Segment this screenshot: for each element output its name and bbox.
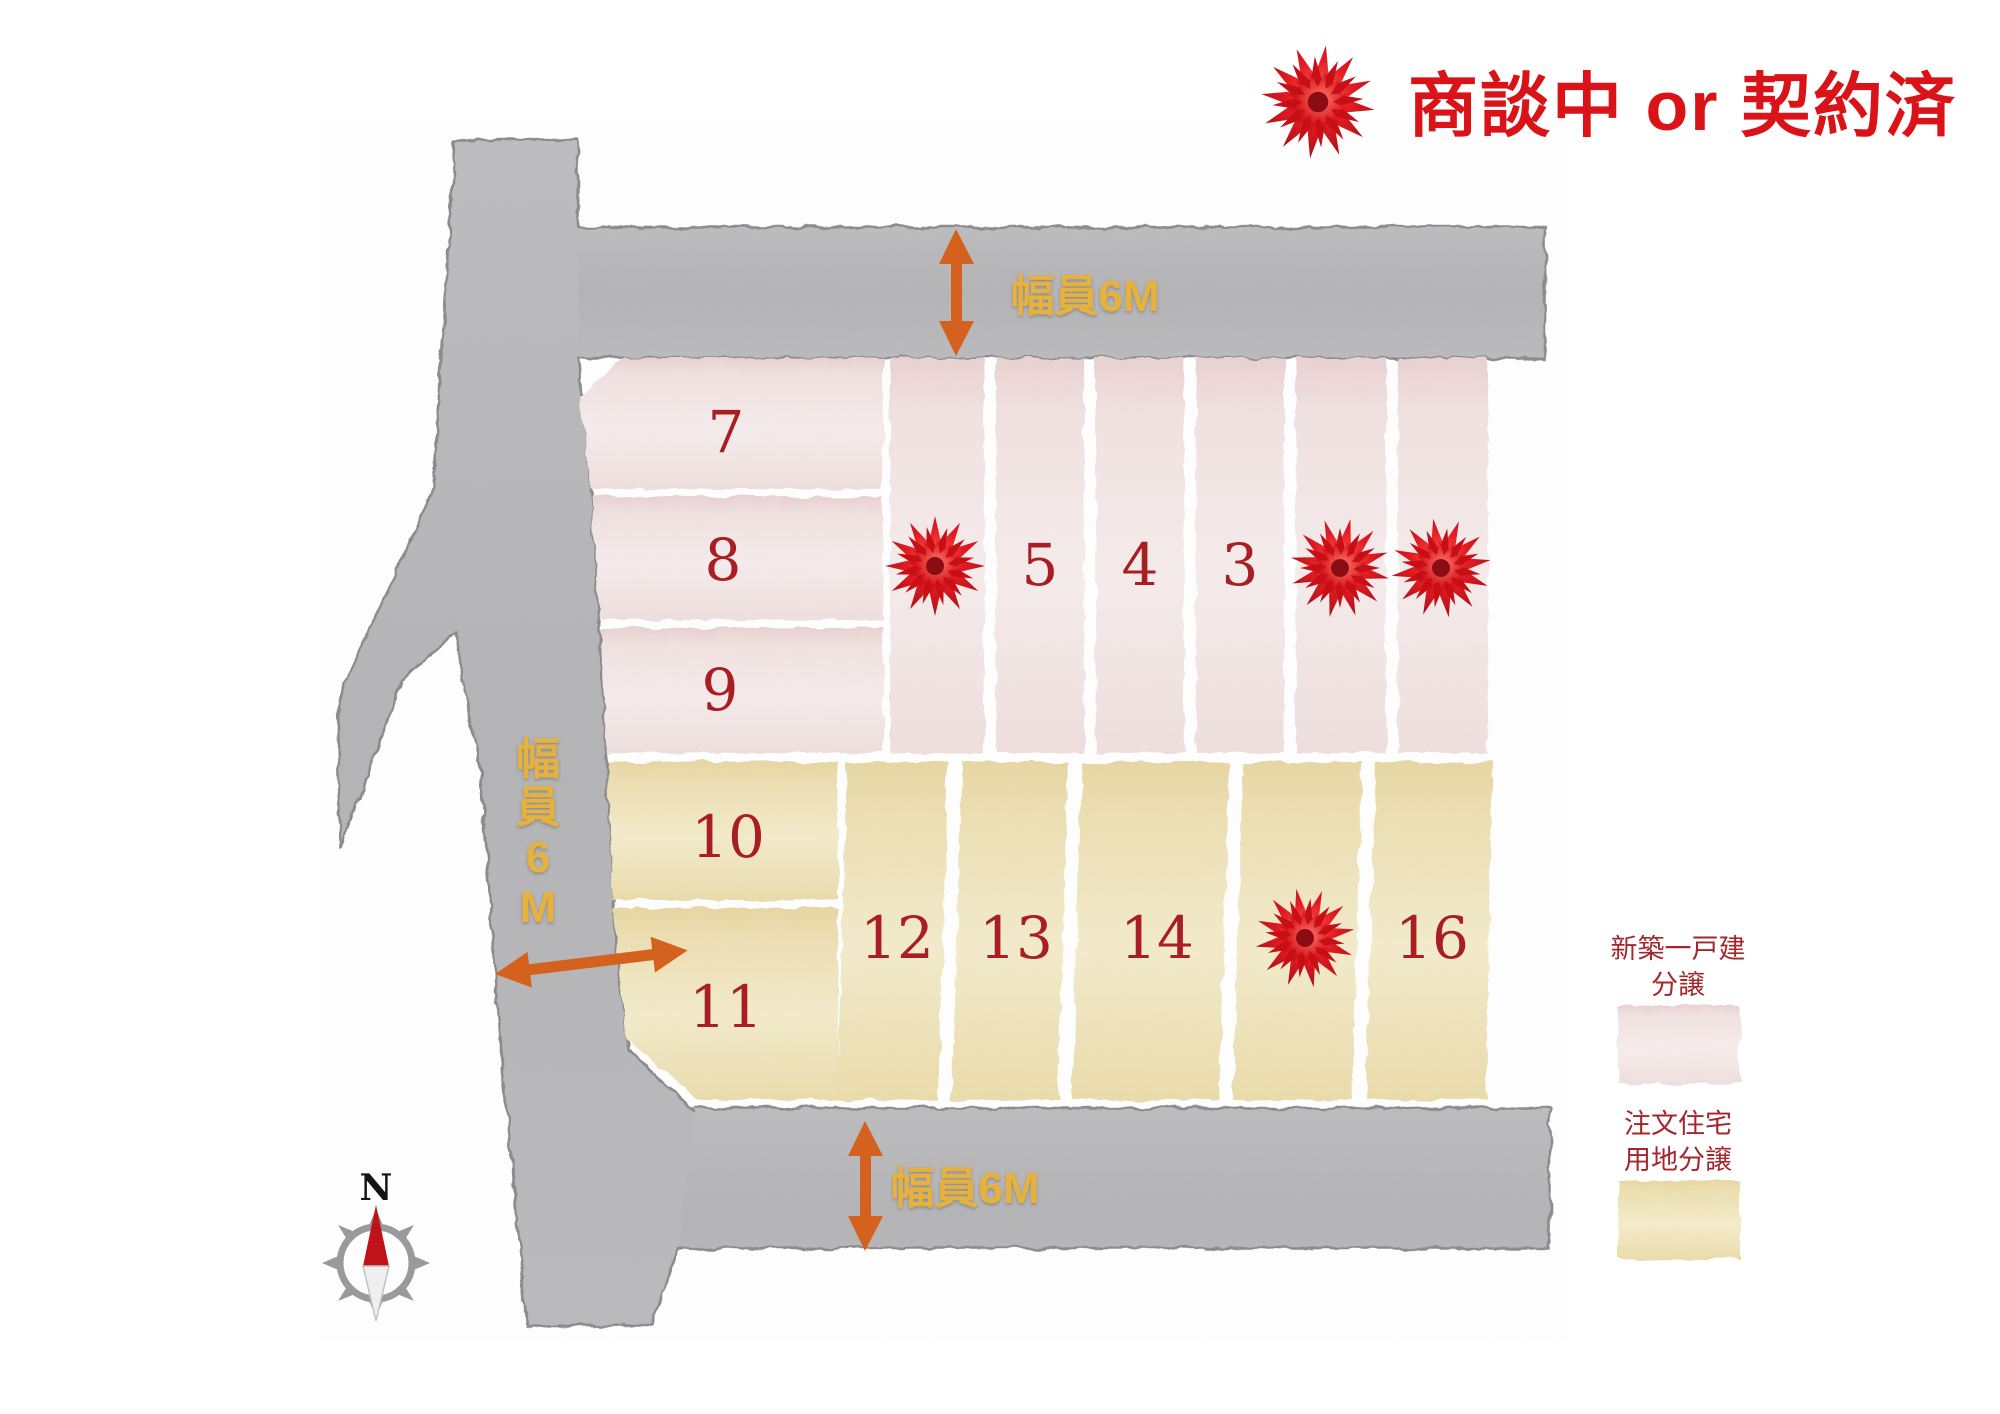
lot-8-number: 8 [705, 526, 742, 594]
lot-11-number: 11 [689, 973, 763, 1041]
width-label-top: 幅員6M [1010, 272, 1159, 321]
legend: 新築一戸建 分譲 注文住宅 用地分譲 [1611, 934, 1746, 1259]
lot-3-number: 3 [1222, 531, 1259, 599]
legend-new-build-line2: 分譲 [1651, 970, 1705, 1001]
lot-14-number: 14 [1120, 904, 1194, 972]
lot-12-number: 12 [860, 904, 934, 972]
legend-swatch-yellow [1618, 1181, 1740, 1259]
lot-4-number: 4 [1122, 531, 1159, 599]
width-label-left-char: 員 [516, 783, 560, 832]
legend-custom-home-line1: 注文住宅 [1624, 1109, 1732, 1140]
compass-north-label: N [360, 1167, 393, 1209]
legend-swatch-pink [1618, 1006, 1740, 1084]
lot-7-number: 7 [708, 398, 745, 466]
lot-9-number: 9 [702, 656, 739, 724]
legend-custom-home-line2: 用地分譲 [1624, 1145, 1732, 1176]
paper-grain-texture [320, 120, 1570, 1340]
lot-16-number: 16 [1395, 904, 1469, 972]
lot-5-number: 5 [1022, 531, 1059, 599]
status-legend-label: 商談中 or 契約済 [1408, 67, 1957, 145]
width-label-bottom: 幅員6M [890, 1164, 1039, 1213]
width-label-left-char: 幅 [516, 735, 560, 784]
legend-item-custom-home: 注文住宅 用地分譲 [1618, 1109, 1740, 1259]
legend-new-build-line1: 新築一戸建 [1611, 934, 1746, 965]
legend-item-new-build: 新築一戸建 分譲 [1611, 934, 1746, 1084]
width-label-left-char: M [520, 883, 557, 932]
width-label-left-char: 6 [526, 833, 550, 882]
lot-10-number: 10 [691, 803, 765, 871]
subdivision-lot-map: 7 8 9 5 4 3 10 11 12 13 14 16 幅員 [0, 0, 2000, 1414]
lot-13-number: 13 [979, 904, 1053, 972]
